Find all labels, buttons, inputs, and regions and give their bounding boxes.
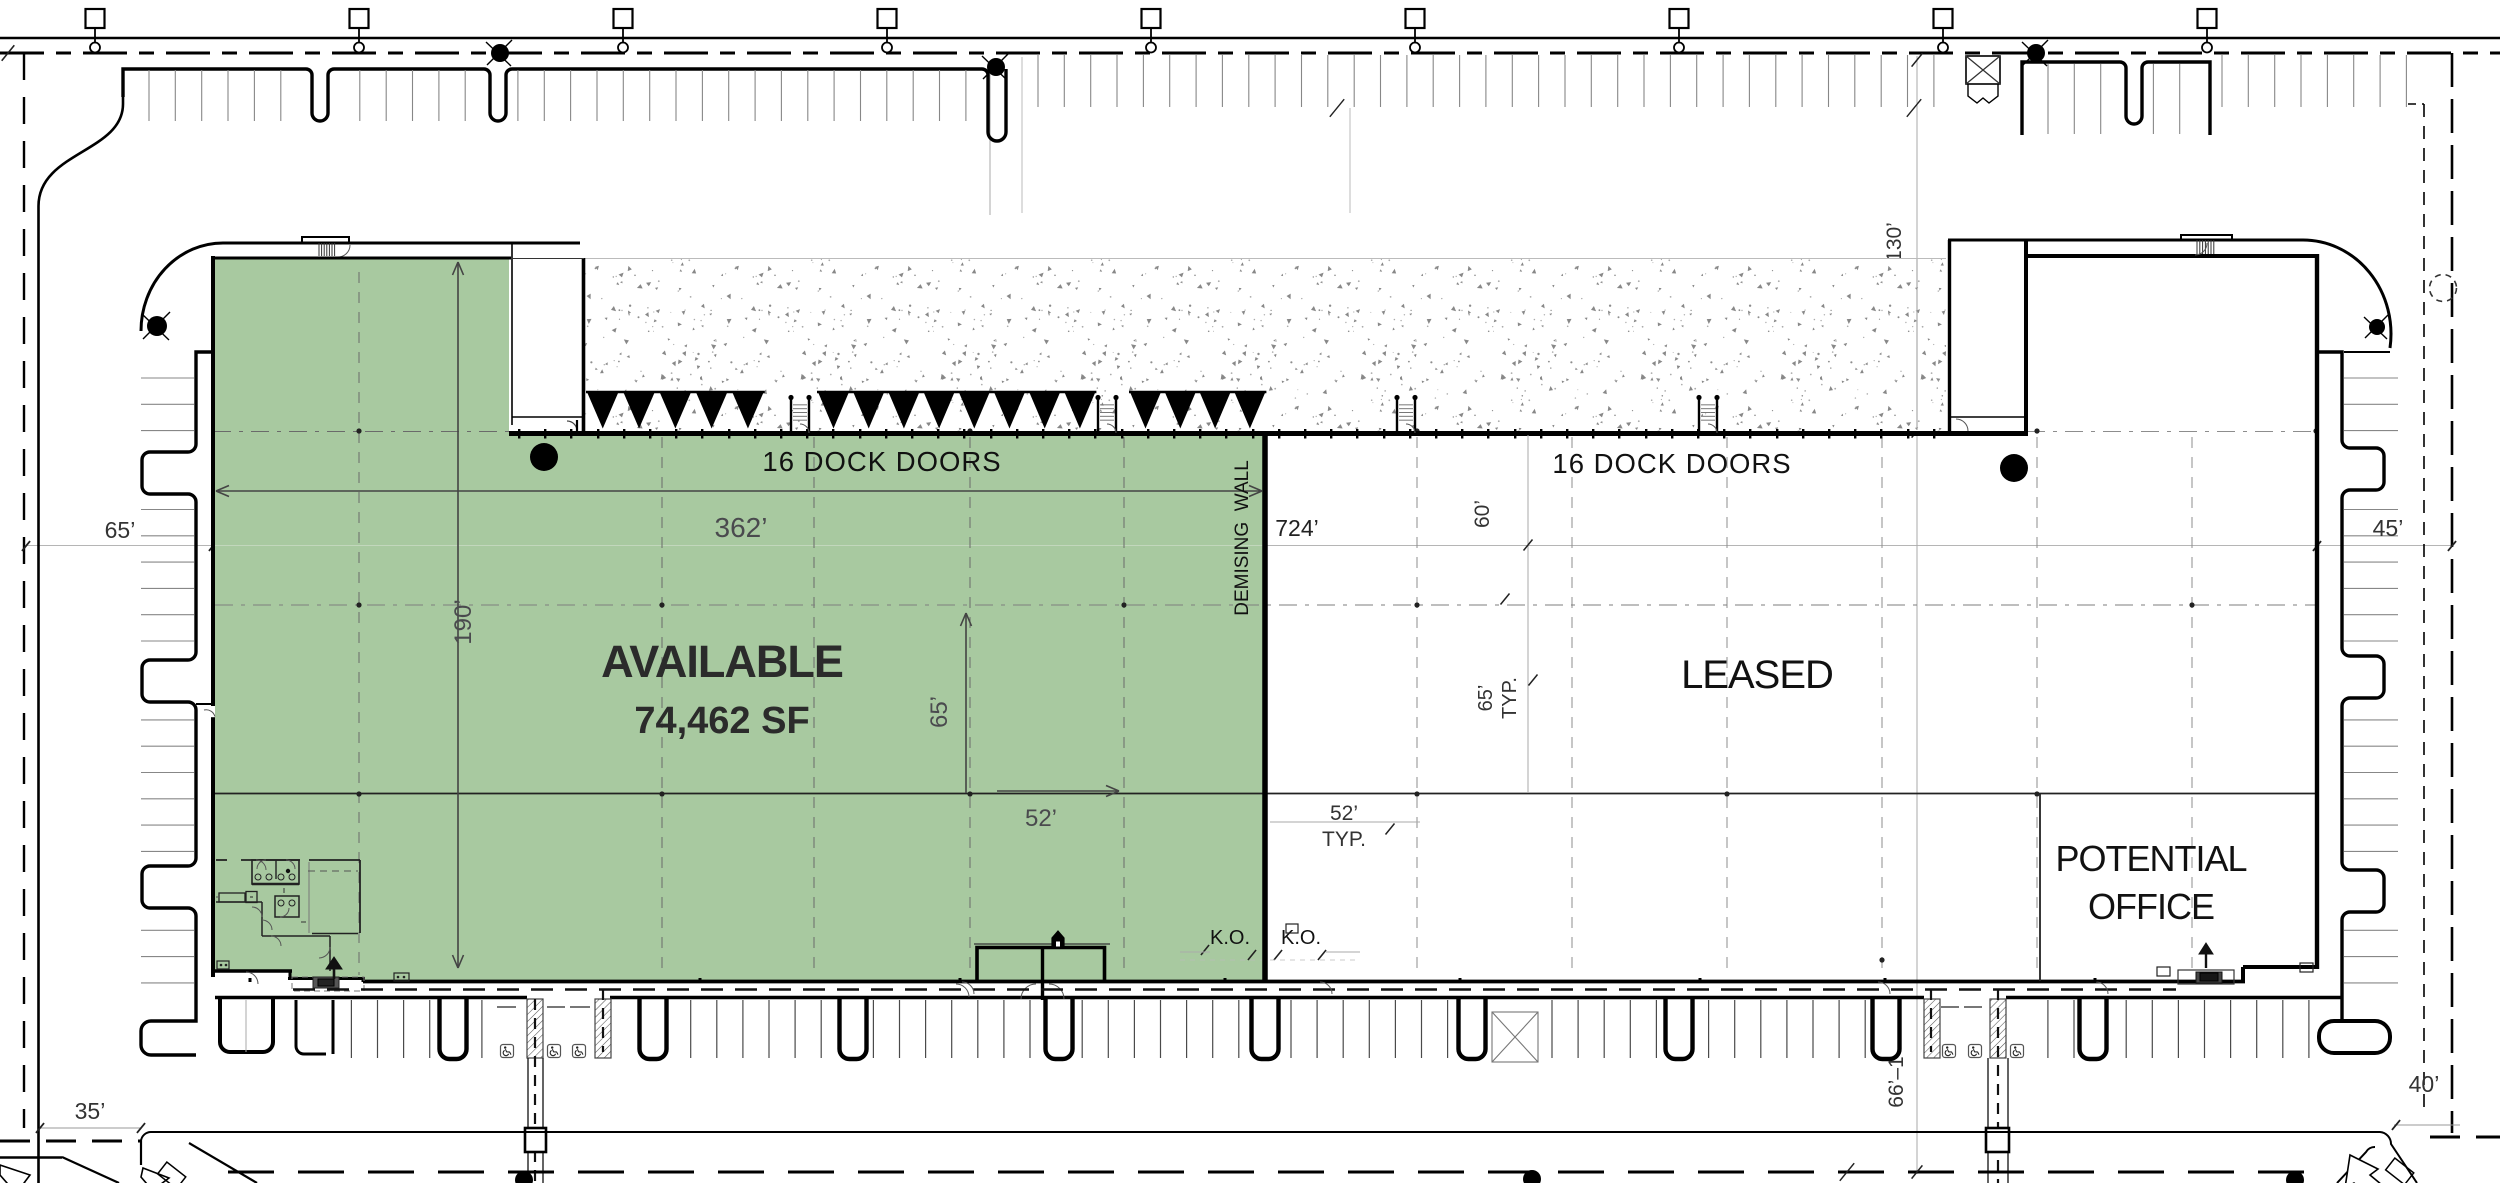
svg-text:130’: 130’ [1883,222,1906,262]
svg-text:16 DOCK DOORS: 16 DOCK DOORS [1552,448,1791,479]
svg-text:LEASED: LEASED [1681,653,1833,697]
svg-text:POTENTIAL: POTENTIAL [2055,838,2246,879]
svg-text:66’–1: 66’–1 [1885,1056,1908,1107]
svg-text:16 DOCK DOORS: 16 DOCK DOORS [762,446,1001,477]
svg-text:724’: 724’ [1275,515,1318,541]
svg-text:K.O.: K.O. [1210,927,1250,949]
svg-text:40’: 40’ [2409,1071,2440,1097]
svg-text:52’: 52’ [1025,805,1057,832]
svg-text:65’: 65’ [1475,685,1497,712]
svg-text:362’: 362’ [715,512,768,543]
svg-text:OFFICE: OFFICE [2088,886,2214,927]
svg-text:65’: 65’ [105,517,136,543]
svg-text:K.O.: K.O. [1281,927,1321,949]
svg-text:AVAILABLE: AVAILABLE [601,636,843,687]
svg-text:DEMISING WALL: DEMISING WALL [1232,460,1253,616]
svg-text:60’: 60’ [1471,500,1494,528]
svg-text:TYP.: TYP. [1499,677,1521,719]
svg-text:190’: 190’ [450,599,477,644]
svg-text:45’: 45’ [2373,515,2404,541]
svg-text:65’: 65’ [926,696,953,728]
svg-text:35’: 35’ [75,1098,106,1124]
svg-text:74,462 SF: 74,462 SF [634,700,809,742]
svg-text:TYP.: TYP. [1322,828,1366,851]
